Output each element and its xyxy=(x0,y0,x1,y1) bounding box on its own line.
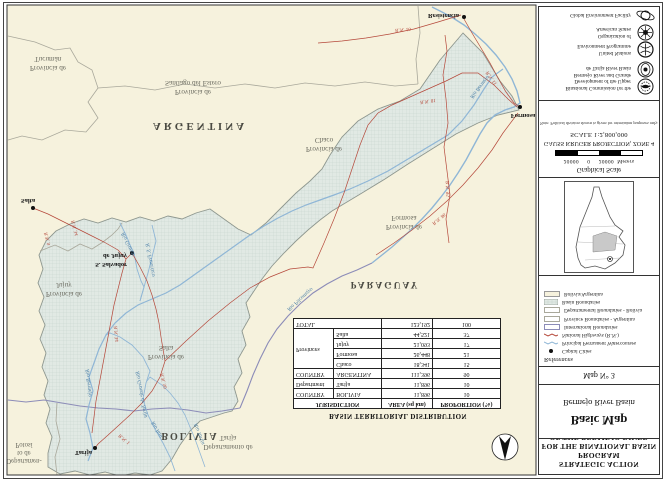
svg-text:Potosí: Potosí xyxy=(16,441,33,448)
map-document-page-flipped: ARGENTINA BOLIVIA PARAGUAY Provincia de … xyxy=(0,0,666,481)
label-city-tarija: Tarija xyxy=(75,449,93,456)
intl-boundary-icon xyxy=(544,324,560,330)
location-inset xyxy=(539,177,659,275)
map-subtitle: Bermejo River Basin xyxy=(539,398,659,408)
col-proportion: PROPORTION (%) xyxy=(432,399,500,409)
label-prov-jujuy: Provincia de xyxy=(46,290,82,298)
map-title-block: Basic Map Bermejo River Basin xyxy=(539,384,659,438)
highway-icon xyxy=(544,332,558,338)
map-sidebar: STRATEGIC ACTION PROGRAM FOR THE BINATIO… xyxy=(538,6,660,475)
label-prov-tucuman: Provincia de xyxy=(30,64,66,72)
label-prov-formosa: Provincia de xyxy=(386,223,422,231)
label-dept-tarija: Departamento de xyxy=(203,443,252,451)
graphical-scale-heading: Graphical Scale xyxy=(539,166,659,174)
table-row: COUNTRY BOLIVIA 11,896 10 xyxy=(294,389,501,399)
credit-binational-commission: Binational Commission for the Developmen… xyxy=(543,58,655,98)
legend-heading: References xyxy=(544,356,654,363)
program-title-block: STRATEGIC ACTION PROGRAM FOR THE BINATIO… xyxy=(539,438,659,474)
capital-city-icon xyxy=(544,348,558,354)
svg-text:Formosa: Formosa xyxy=(391,214,417,222)
tarija-city-dot xyxy=(93,446,97,450)
svg-text:Salta: Salta xyxy=(159,344,174,352)
svg-text:de Jujuy: de Jujuy xyxy=(103,252,128,259)
table-row: Provinces Chaco 18,341 15 xyxy=(294,359,501,369)
label-city-jujuy: S. Salvador xyxy=(95,261,127,268)
basin-territorial-distribution: BASIN TERRITORIAL DISTRIBUTION JURISDICT… xyxy=(293,318,503,420)
salta-city-dot xyxy=(31,206,35,210)
svg-text:Jujuy: Jujuy xyxy=(56,281,72,289)
binational-commission-logo2-icon xyxy=(637,61,654,78)
gef-logo-icon xyxy=(636,8,655,23)
svg-text:to de: to de xyxy=(17,449,30,456)
distribution-table: JURISDICTION AREA (sq km) PROPORTION (%)… xyxy=(293,318,501,409)
inset-basin-highlight xyxy=(593,232,617,252)
svg-text:Santiago del Estero: Santiago del Estero xyxy=(165,79,221,87)
col-area: AREA (sq km) xyxy=(381,399,432,409)
table-row: Department Tarija 11,896 10 xyxy=(294,379,501,389)
col-jurisdiction: JURISDICTION xyxy=(294,399,382,409)
label-prov-salta: Provincia de xyxy=(148,353,184,361)
scale-numbers: 20000 0 20000 Meters xyxy=(539,158,659,164)
scale-ratio-text: SCALE 1:2,800,000 xyxy=(539,131,659,138)
formosa-city-dot xyxy=(518,105,522,109)
unep-logo-icon xyxy=(637,41,654,58)
map-note: Note: Political division shown is given … xyxy=(539,121,659,126)
label-dept-potosi: Departamen- xyxy=(6,457,42,464)
scale-block: Graphical Scale 20000 0 20000 Meters GAU… xyxy=(539,100,659,178)
map-title: Basic Map xyxy=(539,412,659,427)
projection-text: GAUSS KRUGER PROJECTION, ZONE 4 xyxy=(539,140,659,147)
credit-oas: Organization of American States xyxy=(543,24,655,41)
svg-text:Chaco: Chaco xyxy=(315,136,334,144)
label-city-resistencia: Resistencia xyxy=(428,12,460,19)
screenshot-stage: ARGENTINA BOLIVIA PARAGUAY Provincia de … xyxy=(0,0,666,481)
oas-logo-icon xyxy=(637,24,654,41)
legend: References Capital Cities Principal Perm… xyxy=(539,275,659,367)
table-row: COUNTRY ARGENTINA 111,396 90 xyxy=(294,369,501,379)
resistencia-city-dot xyxy=(462,15,466,19)
credit-unep: United Nations Environment Programme xyxy=(543,41,655,58)
argentina-inset-map xyxy=(564,181,634,273)
svg-text:Tucumán: Tucumán xyxy=(35,55,62,63)
label-rn95: R.N. 95 xyxy=(446,181,452,197)
binational-commission-logo-icon xyxy=(637,78,654,95)
map-number: Map N° 3 xyxy=(539,366,659,384)
credit-gef: Global Environment Facility xyxy=(543,7,655,24)
basin-boundary-icon xyxy=(544,299,558,305)
label-city-formosa: Formosa xyxy=(511,112,536,119)
table-row-total: TOTAL 123,192 100 xyxy=(294,319,501,329)
label-paraguay: PARAGUAY xyxy=(351,279,420,289)
svg-text:Tarija: Tarija xyxy=(220,434,237,442)
label-city-salta: Salta xyxy=(21,197,36,204)
province-boundary-icon xyxy=(544,316,560,322)
label-prov-santiago: Provincia de xyxy=(175,88,211,96)
label-bolivia: BOLIVIA xyxy=(161,430,218,441)
country-fill-icon xyxy=(544,291,560,297)
dept-boundary-icon xyxy=(544,307,560,313)
table-title: BASIN TERRITORIAL DISTRIBUTION xyxy=(293,412,503,420)
credits-block: Binational Commission for the Developmen… xyxy=(539,7,659,100)
label-argentina: ARGENTINA xyxy=(153,120,247,132)
north-arrow-icon xyxy=(492,434,518,460)
scale-bar xyxy=(555,150,643,156)
watercourse-icon xyxy=(544,340,558,346)
label-prov-chaco: Provincia de xyxy=(306,145,342,153)
